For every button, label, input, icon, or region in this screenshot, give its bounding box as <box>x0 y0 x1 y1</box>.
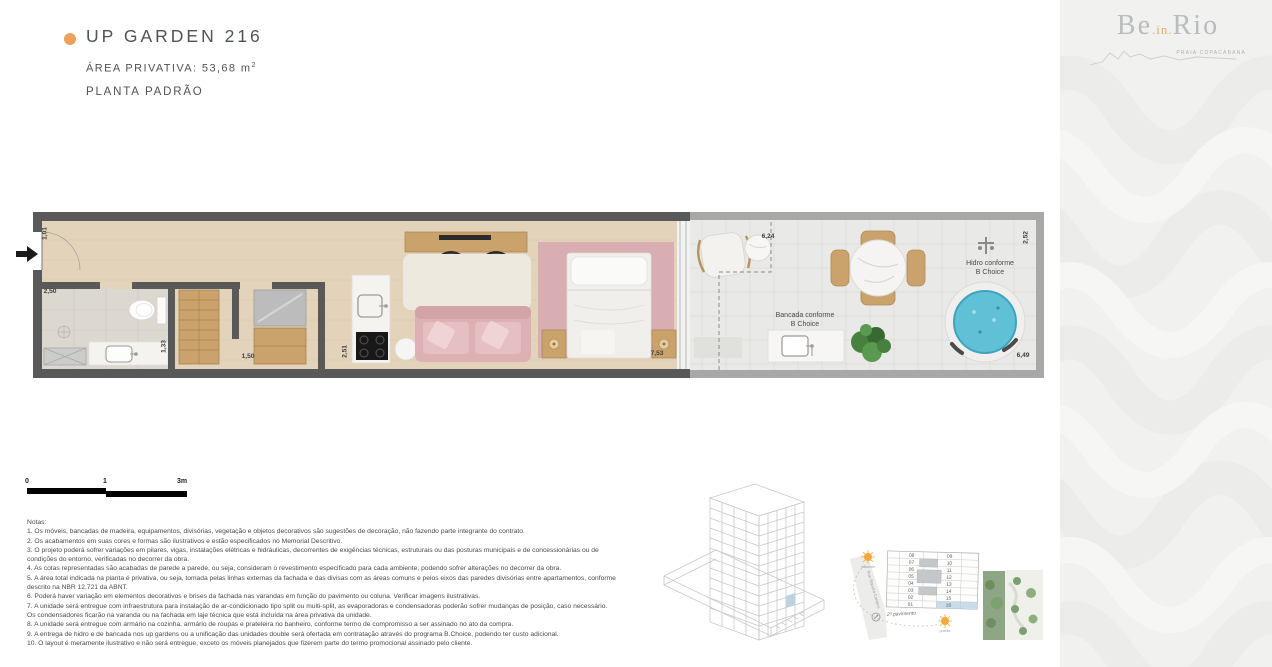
unit-number: 09 <box>947 554 953 560</box>
wardrobe <box>179 290 219 364</box>
bancada-annotation-line2: B Choice <box>755 321 855 330</box>
unit-number: 10 <box>947 561 953 567</box>
note-line: 7. A unidade será entregue com infraestr… <box>27 602 667 611</box>
key-plan: Rua Siqueira Campos 08 07 06 05 04 03 <box>845 543 1057 667</box>
unit-number: 12 <box>946 575 952 581</box>
bathroom-sink <box>89 342 168 365</box>
scale-bar: 0 1 3m <box>27 478 197 504</box>
unit-grid: 08 07 06 05 04 03 02 01 09 10 11 12 13 1… <box>886 551 978 610</box>
shower-drain-icon <box>58 326 70 338</box>
side-table <box>395 338 417 360</box>
hidro-annotation-line2: B Choice <box>950 269 1030 278</box>
dim-label-2-51: 2,51 <box>342 340 349 364</box>
notes-title: Notas: <box>27 518 667 527</box>
bed <box>567 253 651 358</box>
highlighted-unit-cell <box>786 593 795 608</box>
bathroom <box>42 289 168 369</box>
building-isometric-drawing <box>658 478 838 666</box>
dim-label-7-53: 7,53 <box>645 350 669 357</box>
sun-east-label: nascente <box>861 565 876 569</box>
bancada-annotation: Bancada conforme B Choice <box>755 312 855 329</box>
private-area-label: ÁREA PRIVATIVA: 53,68 m2 <box>86 62 257 75</box>
private-area-text: ÁREA PRIVATIVA: 53,68 m <box>86 63 251 75</box>
mountain-skyline-icon <box>1088 44 1238 68</box>
unit-number: 11 <box>947 568 952 574</box>
unit-number: 16 <box>946 603 952 609</box>
unit-number: 02 <box>908 595 914 601</box>
dim-label-1-33: 1,33 <box>161 335 168 359</box>
dim-label-1-50: 1,50 <box>236 353 260 360</box>
logo-part-in: .in. <box>1152 22 1173 38</box>
plan-type-label: PLANTA PADRÃO <box>86 86 204 98</box>
brand-logo: Be.in.Rio PRAIA COPACABANA <box>1088 10 1248 68</box>
nightstand-left <box>542 330 566 358</box>
dim-label-6-49: 6,49 <box>1011 352 1035 359</box>
note-line: 10. O layout é meramente ilustrativo e n… <box>27 639 667 648</box>
note-line: 8. A unidade será entregue com armário n… <box>27 620 667 629</box>
logo-part-rio: Rio <box>1173 10 1219 42</box>
dim-label-6-24: 6,24 <box>756 233 780 240</box>
unit-number: 07 <box>909 560 915 566</box>
technical-slab <box>44 348 86 365</box>
brand-logo-wordmark: Be.in.Rio <box>1088 10 1248 42</box>
note-line: 9. A entrega de hidro e de bancada nos u… <box>27 630 667 639</box>
unit-number: 08 <box>909 553 915 559</box>
kitchen-counter <box>352 275 390 363</box>
unit-number: 01 <box>908 602 914 608</box>
dim-label-2-52: 2,52 <box>1023 226 1030 250</box>
hidro-annotation: Hidro conforme B Choice <box>950 260 1030 277</box>
hidro-annotation-line1: Hidro conforme <box>950 260 1030 269</box>
unit-number: 03 <box>908 588 914 594</box>
scale-tick-0: 0 <box>25 478 29 485</box>
note-line: Os condensadores ficarão na varanda ou n… <box>27 611 667 620</box>
orange-bullet-icon <box>64 33 76 45</box>
desk <box>405 232 527 252</box>
living-rug <box>403 254 531 310</box>
floor-plan: 1,01 2,50 1,33 1,50 2,51 7,53 6,24 2,52 … <box>14 210 1044 380</box>
key-plan-drawing: Rua Siqueira Campos 08 07 06 05 04 03 <box>845 543 1057 663</box>
note-line: 5. A área total indicada na planta é pri… <box>27 574 667 583</box>
sun-east-icon <box>861 550 875 564</box>
unit-number: 05 <box>908 574 914 580</box>
copacabana-wave-pattern <box>1060 0 1272 667</box>
private-area-sup: 2 <box>251 62 256 69</box>
note-line: descrito na NBR 12.721 da ABNT. <box>27 583 667 592</box>
scale-tick-1: 1 <box>103 478 107 485</box>
sun-west-label: poente <box>940 629 951 633</box>
note-line: 1. Os móveis, bancadas de madeira, equip… <box>27 527 667 536</box>
note-line: 3. O projeto poderá sofrer variações em … <box>27 546 667 555</box>
scale-bar-segment-2 <box>106 491 187 497</box>
building-diagram <box>658 478 838 667</box>
sun-west-icon <box>938 614 952 628</box>
note-line: 4. As cotas representadas são acabadas d… <box>27 564 667 573</box>
sofa <box>415 306 531 362</box>
page: Be.in.Rio PRAIA COPACABANA UP GARDEN 216… <box>0 0 1272 667</box>
note-line: condições do entorno, verificadas no dec… <box>27 555 667 564</box>
floor-plan-drawing <box>14 210 1044 380</box>
floor-label: 2º pavimento <box>886 610 917 618</box>
bancada <box>768 330 844 362</box>
highlighted-unit-16 <box>936 601 977 609</box>
notes-block: Notas: 1. Os móveis, bancadas de madeira… <box>27 518 667 648</box>
note-line: 2. Os acabamentos em suas cores e formas… <box>27 537 667 546</box>
page-title: UP GARDEN 216 <box>86 26 263 47</box>
unit-number: 04 <box>908 581 914 587</box>
unit-number: 14 <box>946 589 952 595</box>
glass-door <box>677 220 690 370</box>
bancada-annotation-line1: Bancada conforme <box>755 312 855 321</box>
hot-tub <box>945 282 1025 362</box>
dim-label-1-01: 1,01 <box>42 222 49 246</box>
garden-areas <box>983 570 1043 640</box>
scale-tick-3m: 3m <box>177 478 187 485</box>
note-line: 6. Poderá haver variação em elementos de… <box>27 592 667 601</box>
dim-label-2-50: 2,50 <box>38 288 62 295</box>
unit-number: 13 <box>946 582 952 588</box>
logo-tagline: PRAIA COPACABANA <box>1176 50 1246 56</box>
side-panel: Be.in.Rio PRAIA COPACABANA <box>1060 0 1272 667</box>
unit-number: 15 <box>946 596 952 602</box>
logo-part-be: Be <box>1117 10 1152 42</box>
unit-number: 06 <box>909 567 915 573</box>
scale-bar-segment-1 <box>27 488 106 494</box>
